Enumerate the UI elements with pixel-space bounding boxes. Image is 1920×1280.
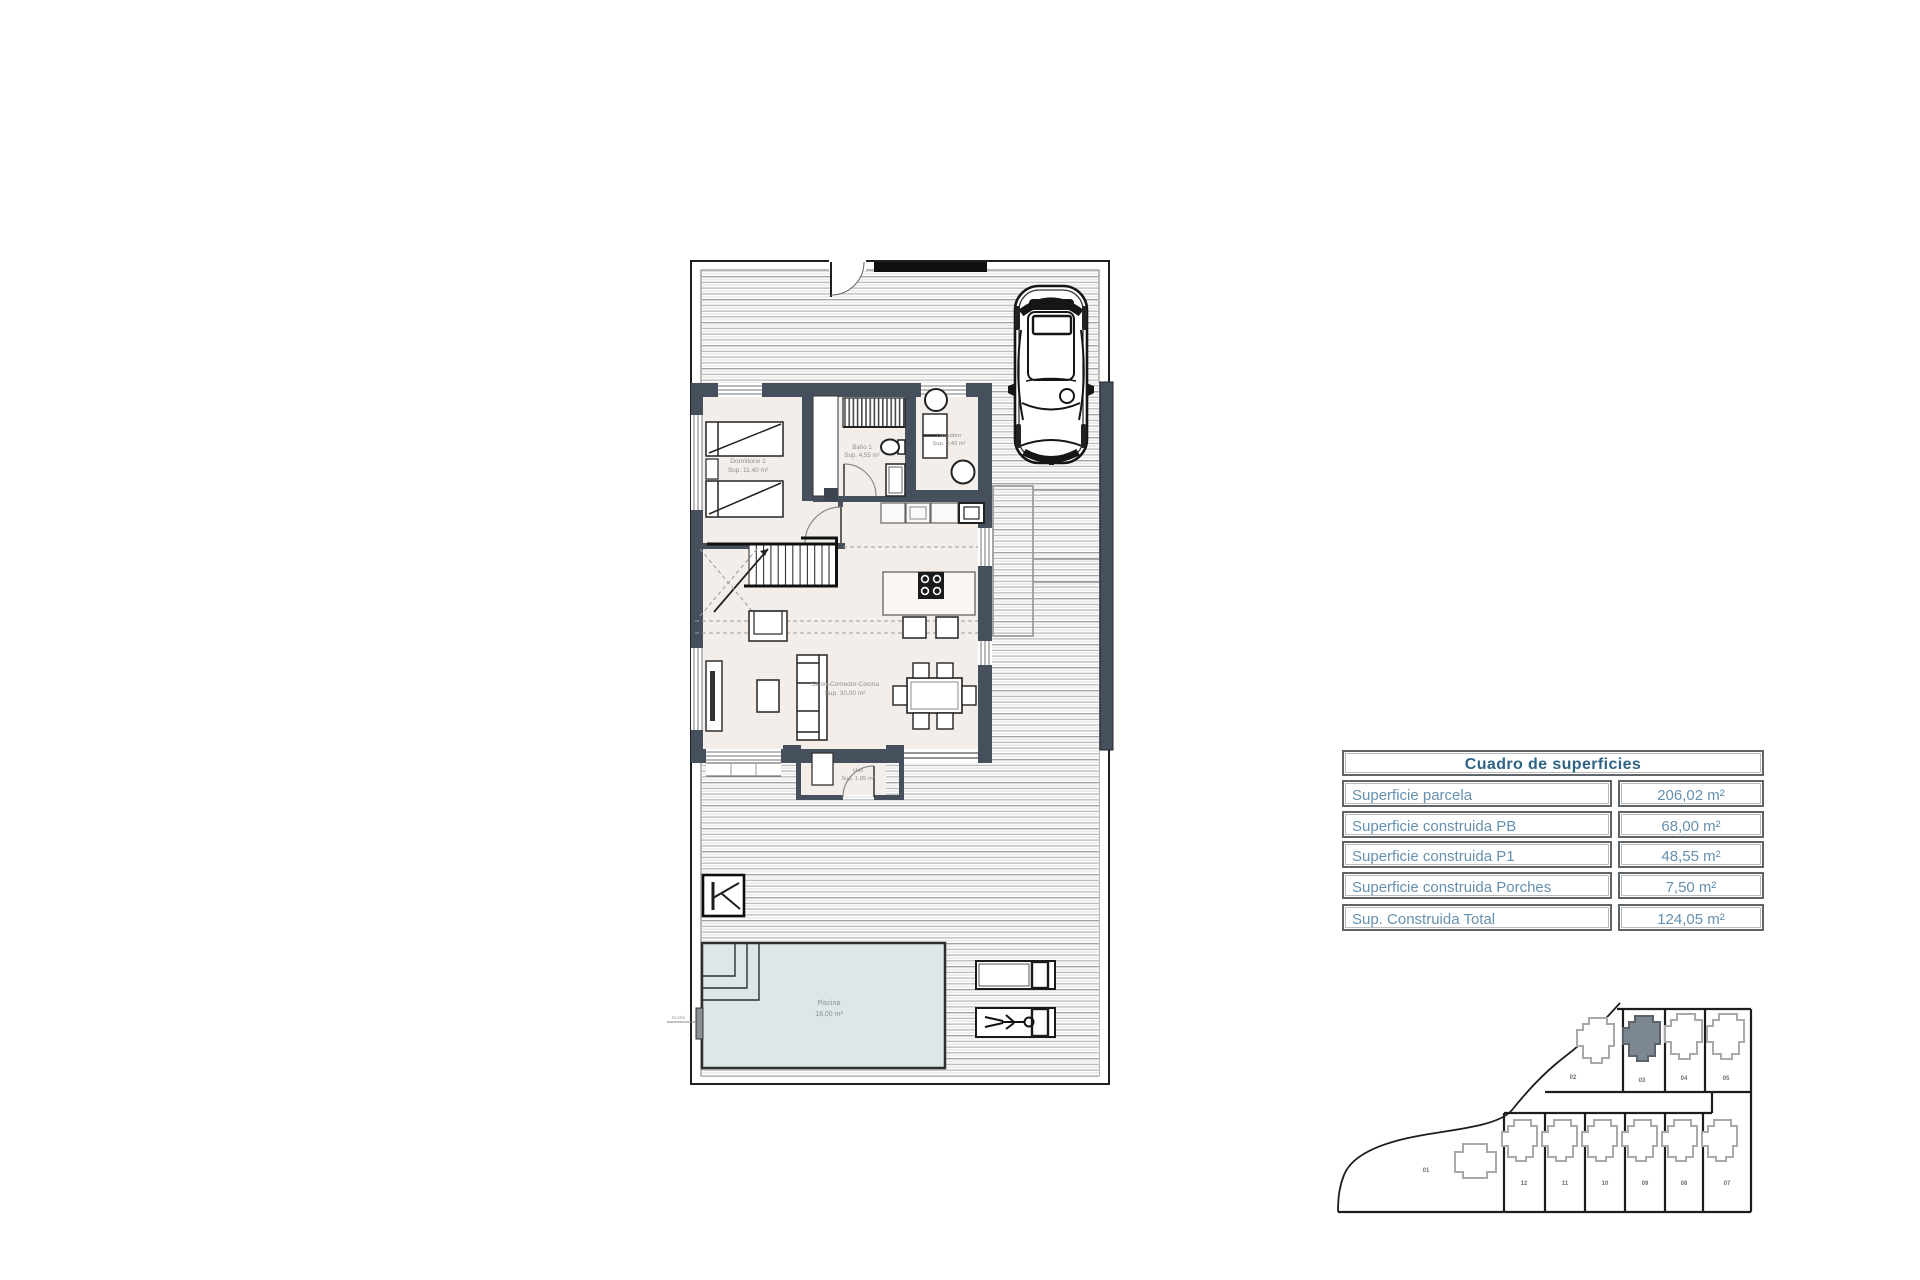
svg-text:07: 07 <box>1724 1181 1731 1187</box>
svg-text:02: 02 <box>1570 1075 1577 1081</box>
svg-text:03: 03 <box>1639 1078 1646 1084</box>
svg-text:04: 04 <box>1681 1076 1688 1082</box>
svg-text:11: 11 <box>1562 1181 1569 1187</box>
svg-text:Ducha: Ducha <box>672 1015 686 1020</box>
svg-text:Sup. 30,00 m²: Sup. 30,00 m² <box>825 690 867 697</box>
svg-text:08: 08 <box>1681 1181 1688 1187</box>
svg-text:10: 10 <box>1602 1181 1609 1187</box>
svg-text:Lavadero: Lavadero <box>937 433 961 439</box>
svg-text:09: 09 <box>1642 1181 1649 1187</box>
svg-text:Sup. 3,40 m²: Sup. 3,40 m² <box>932 441 965 447</box>
svg-text:Sup. 1,85 m²: Sup. 1,85 m² <box>841 776 874 782</box>
svg-text:18,00 m²: 18,00 m² <box>815 1011 843 1018</box>
svg-text:05: 05 <box>1723 1076 1730 1082</box>
svg-text:12: 12 <box>1521 1181 1528 1187</box>
svg-text:Salón-Comedor-Cocina: Salón-Comedor-Cocina <box>811 681 879 688</box>
svg-text:Sup. 4,55 m²: Sup. 4,55 m² <box>844 452 879 459</box>
svg-text:Hall: Hall <box>853 768 863 774</box>
svg-text:01: 01 <box>1423 1168 1430 1174</box>
svg-text:Sup. 11,40 m²: Sup. 11,40 m² <box>728 467 769 474</box>
svg-text:Piscina: Piscina <box>818 1000 841 1007</box>
svg-text:Dormitorio 1: Dormitorio 1 <box>730 458 766 465</box>
svg-text:Baño 1: Baño 1 <box>852 444 872 451</box>
